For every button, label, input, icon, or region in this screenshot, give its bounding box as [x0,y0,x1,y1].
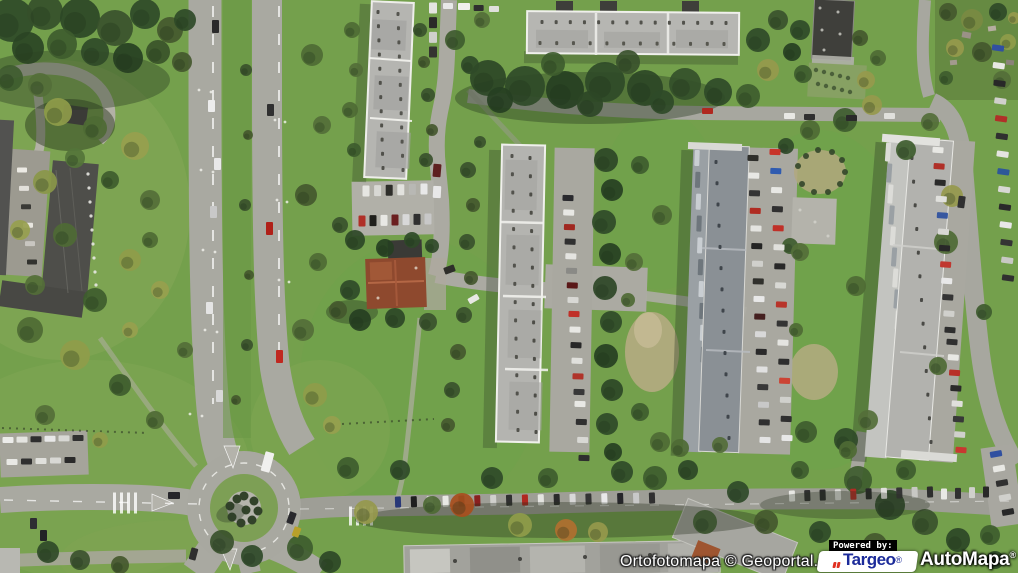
map-viewport[interactable]: Ortofotomapa © Geoportal.gov.pl Powered … [0,0,1018,573]
automapa-logo[interactable]: AutoMapa® [920,549,1016,571]
targeo-logo-text: Targeo [843,549,895,570]
automapa-reg-mark: ® [1009,550,1015,560]
aerial-photo-canvas[interactable] [0,0,1018,573]
targeo-reg-mark: ® [895,550,902,571]
automapa-logo-text: AutoMapa [920,549,1009,570]
targeo-quote-icon [833,553,841,573]
targeo-logo[interactable]: Targeo ® [817,551,919,572]
